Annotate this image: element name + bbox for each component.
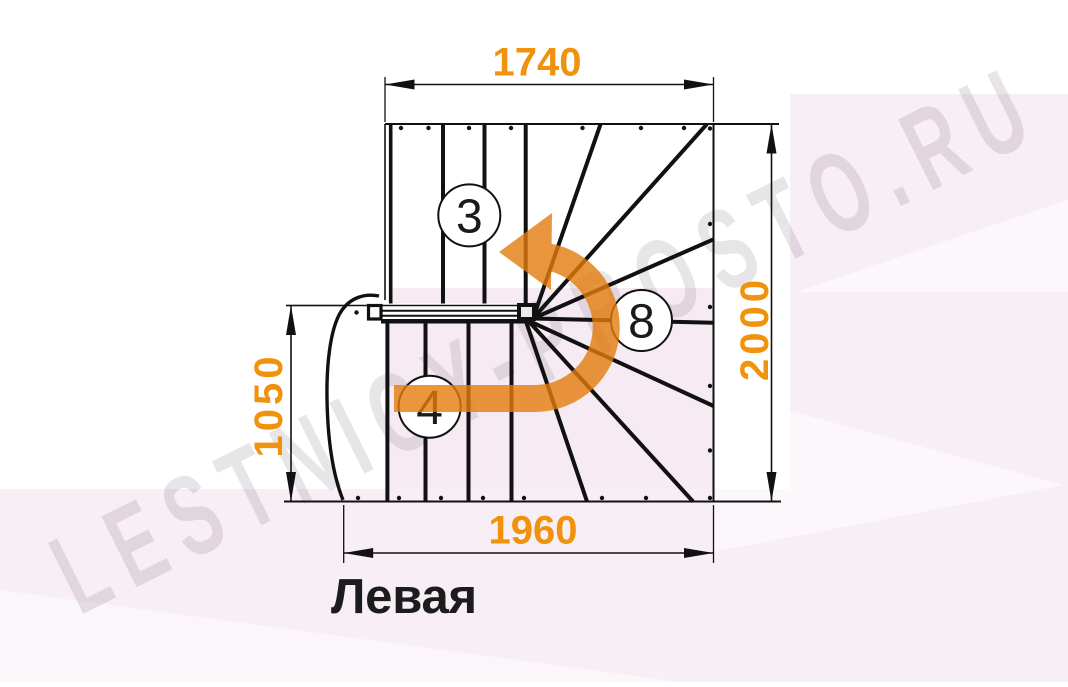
svg-text:1740: 1740 <box>493 41 582 85</box>
svg-text:3: 3 <box>456 191 483 244</box>
svg-text:1050: 1050 <box>247 353 291 458</box>
svg-text:1960: 1960 <box>489 509 578 553</box>
svg-text:Левая: Левая <box>331 570 477 624</box>
svg-text:2000: 2000 <box>733 276 777 381</box>
svg-text:8: 8 <box>628 296 655 349</box>
